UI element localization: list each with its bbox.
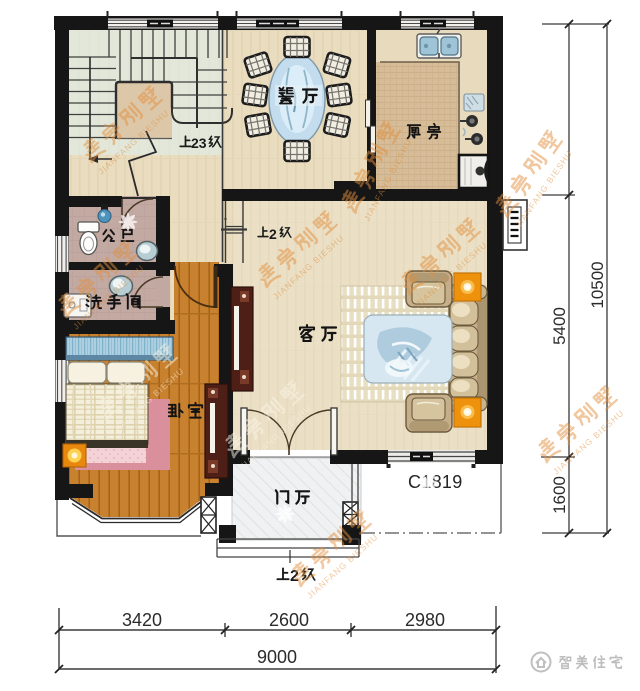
svg-text:2: 2 (269, 226, 277, 242)
svg-text:3420: 3420 (122, 610, 162, 630)
svg-text:10500: 10500 (588, 261, 607, 308)
svg-text:23: 23 (191, 135, 207, 151)
svg-text:2600: 2600 (269, 610, 309, 630)
svg-text:2980: 2980 (405, 610, 445, 630)
svg-text:5400: 5400 (550, 307, 569, 345)
svg-text:9000: 9000 (257, 647, 297, 667)
svg-text:1600: 1600 (550, 476, 569, 514)
